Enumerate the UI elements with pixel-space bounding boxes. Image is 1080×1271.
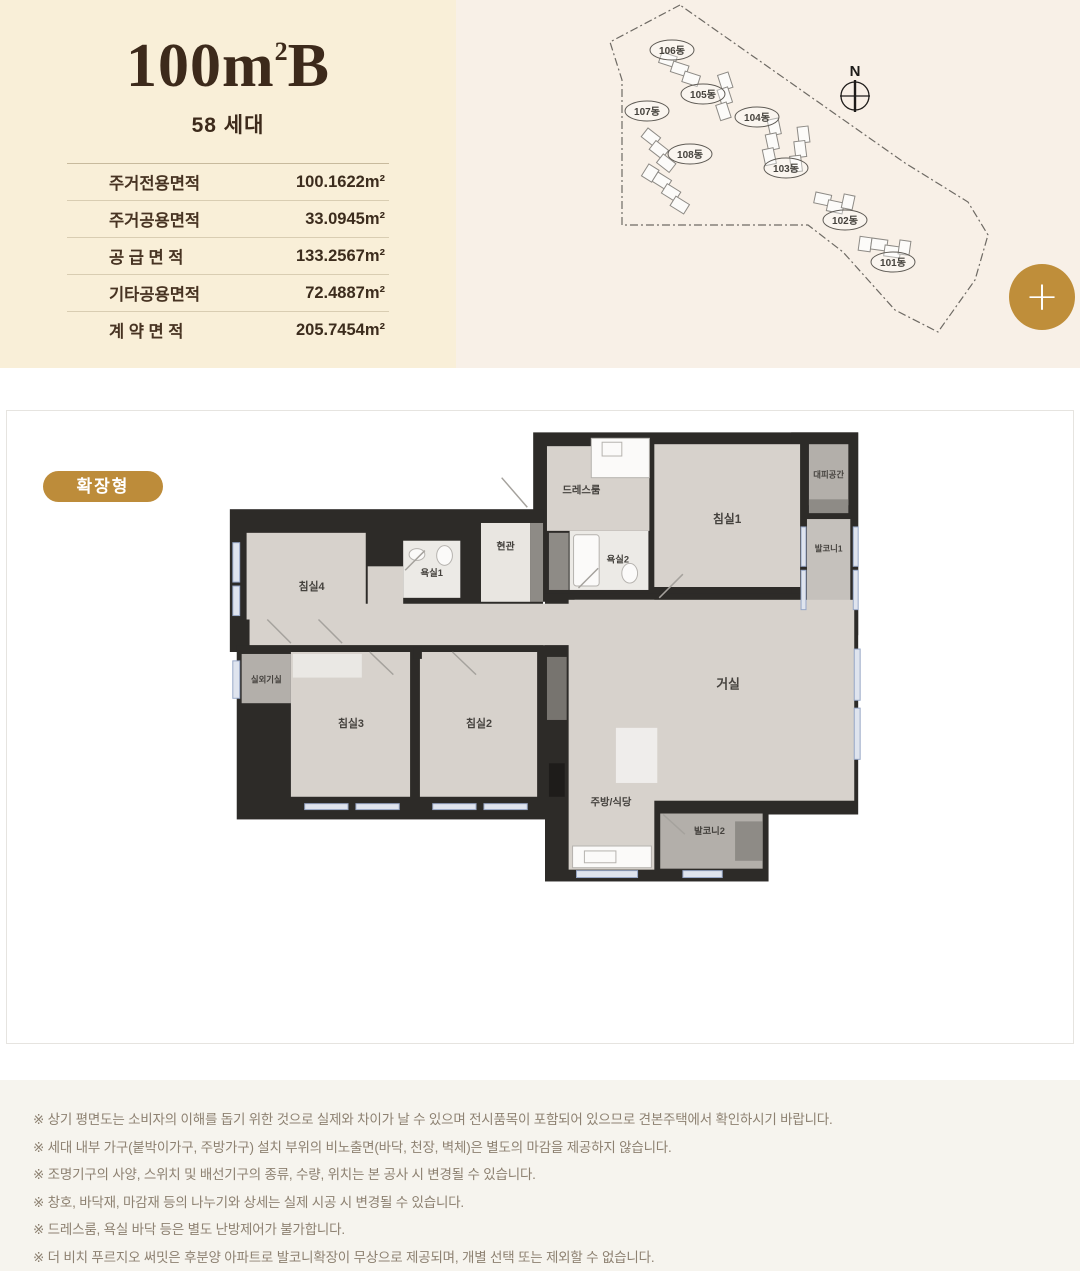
- table-row: 주거공용면적 33.0945m²: [67, 200, 389, 237]
- table-row: 계 약 면 적 205.7454m²: [67, 311, 389, 348]
- room-label-living: 거실: [716, 676, 740, 691]
- room-label-bath2: 욕실2: [607, 553, 629, 564]
- disclaimer-line: ※ 더 비치 푸르지오 써밋은 후분양 아파트로 발코니확장이 무상으로 제공되…: [33, 1244, 1050, 1271]
- disclaimer-section: ※ 상기 평면도는 소비자의 이해를 돕기 위한 것으로 실제와 차이가 날 수…: [0, 1080, 1080, 1271]
- table-row: 기타공용면적 72.4887m²: [67, 274, 389, 311]
- expanded-type-badge[interactable]: 확장형: [43, 471, 163, 502]
- svg-text:101동: 101동: [880, 257, 906, 269]
- building-label-107: 107동: [625, 101, 669, 121]
- area-label: 주거공용면적: [109, 207, 200, 231]
- unit-count: 58 세대: [0, 109, 456, 139]
- square-meter-sup: 2: [275, 37, 288, 66]
- room-label-entry: 현관: [497, 540, 515, 553]
- svg-text:102동: 102동: [832, 215, 858, 227]
- building-cluster-108: [636, 164, 696, 214]
- room-label-bed1: 침실1: [713, 512, 742, 526]
- unit-type-title: 100m2B: [0, 34, 456, 99]
- svg-text:103동: 103동: [773, 163, 799, 175]
- room-label-evac: 대피공간: [813, 470, 844, 480]
- disclaimer-line: ※ 드레스룸, 욕실 바닥 등은 별도 난방제어가 불가합니다.: [33, 1216, 1050, 1244]
- zoom-plus-button[interactable]: +: [1009, 264, 1075, 330]
- disclaimer-line: ※ 창호, 바닥재, 마감재 등의 나누기와 상세는 실제 시공 시 변경될 수…: [33, 1189, 1050, 1217]
- room-label-bath1: 욕실1: [421, 567, 443, 578]
- unit-info-panel: 100m2B 58 세대 주거전용면적 100.1622m² 주거공용면적 33…: [0, 0, 456, 368]
- disclaimer-line: ※ 상기 평면도는 소비자의 이해를 돕기 위한 것으로 실제와 차이가 날 수…: [33, 1106, 1050, 1134]
- floorplan-card: 확장형: [6, 410, 1074, 1044]
- svg-text:105동: 105동: [690, 89, 716, 101]
- area-value: 205.7454m²: [296, 321, 385, 340]
- building-label-101: 101동: [871, 252, 915, 272]
- svg-text:107동: 107동: [634, 106, 660, 118]
- area-table: 주거전용면적 100.1622m² 주거공용면적 33.0945m² 공 급 면…: [67, 163, 389, 348]
- svg-text:104동: 104동: [744, 112, 770, 124]
- header-section: 100m2B 58 세대 주거전용면적 100.1622m² 주거공용면적 33…: [0, 0, 1080, 368]
- room-label-outdoor: 실외기실: [251, 675, 282, 685]
- disclaimer-line: ※ 세대 내부 가구(붙박이가구, 주방가구) 설치 부위의 비노출면(바닥, …: [33, 1134, 1050, 1162]
- compass-icon: N: [840, 63, 870, 112]
- area-label: 공 급 면 적: [109, 244, 183, 268]
- disclaimer-line: ※ 조명기구의 사양, 스위치 및 배선기구의 종류, 수량, 위치는 본 공사…: [33, 1161, 1050, 1189]
- floorplan-page: { "header": { "title_base": "100m", "tit…: [0, 0, 1080, 1271]
- room-label-bed4: 침실4: [299, 579, 325, 593]
- area-value: 72.4887m²: [305, 284, 385, 303]
- building-label-105: 105동: [681, 84, 725, 104]
- area-value: 133.2567m²: [296, 247, 385, 266]
- area-value: 33.0945m²: [305, 210, 385, 229]
- site-map-panel: 106동 105동 107동 104동 108동 103동 102동 101동 …: [456, 0, 1080, 368]
- area-value: 100.1622m²: [296, 173, 385, 192]
- room-label-bed2: 침실2: [466, 716, 492, 730]
- room-label-balc2: 발코니2: [694, 825, 725, 836]
- floorplan-diagram: 드레스룸 대피공간 침실1 발코니1 욕실2 현관 욕실1 침실4 실외기실 침…: [220, 417, 870, 887]
- svg-text:106동: 106동: [659, 45, 685, 57]
- area-label: 계 약 면 적: [109, 318, 183, 342]
- table-row: 주거전용면적 100.1622m²: [67, 163, 389, 200]
- room-label-balc1: 발코니1: [815, 544, 843, 554]
- svg-text:N: N: [850, 63, 861, 80]
- room-label-kitchen: 주방/식당: [591, 796, 632, 809]
- area-label: 기타공용면적: [109, 281, 200, 305]
- building-label-103: 103동: [764, 158, 808, 178]
- building-label-106: 106동: [650, 40, 694, 60]
- building-label-104: 104동: [735, 107, 779, 127]
- svg-text:108동: 108동: [677, 149, 703, 161]
- building-label-108: 108동: [668, 144, 712, 164]
- site-map: 106동 105동 107동 104동 108동 103동 102동 101동 …: [600, 0, 1080, 340]
- area-label: 주거전용면적: [109, 170, 200, 194]
- building-label-102: 102동: [823, 210, 867, 230]
- table-row: 공 급 면 적 133.2567m²: [67, 237, 389, 274]
- room-label-bed3: 침실3: [338, 716, 364, 730]
- room-label-dress: 드레스룸: [562, 483, 601, 496]
